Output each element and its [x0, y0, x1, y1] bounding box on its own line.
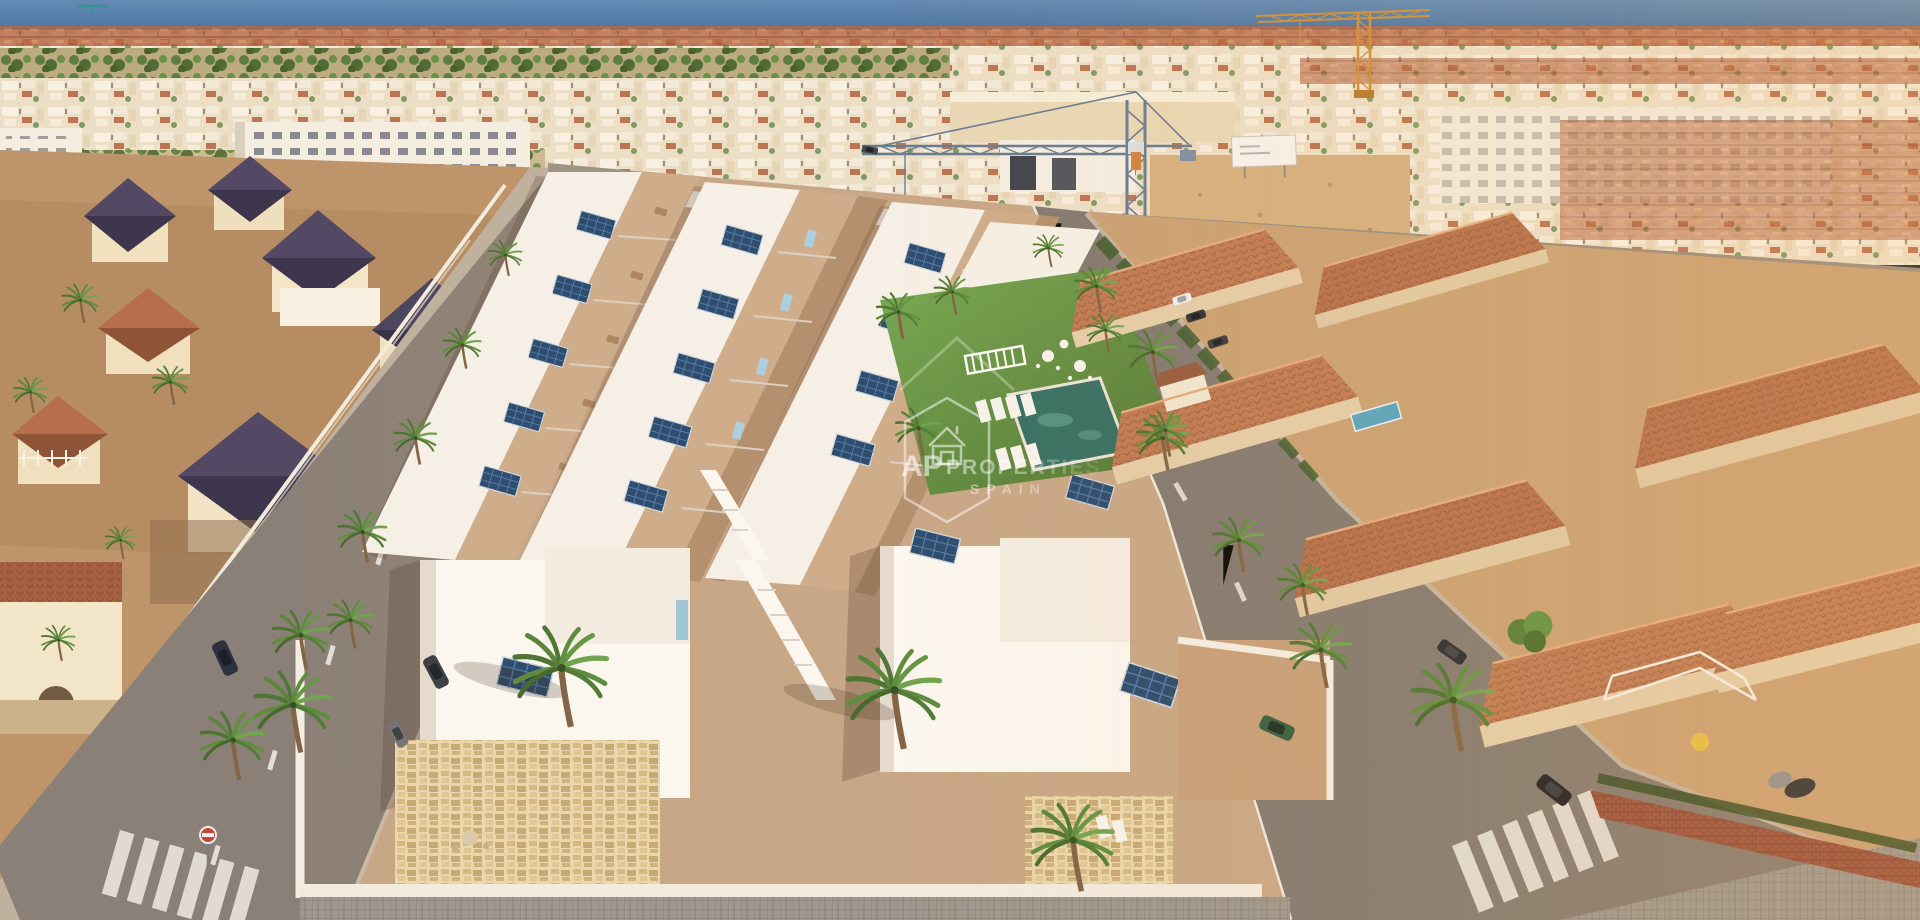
watermark-brand-region: SPAIN — [970, 481, 1047, 497]
aerial-render-image: AP PROPERTIES SPAIN — [0, 0, 1920, 920]
watermark-brand-prefix: AP — [901, 450, 943, 483]
watermark-brand-name: PROPERTIES — [946, 456, 1101, 479]
scene-canvas: AP PROPERTIES SPAIN — [0, 0, 1920, 920]
